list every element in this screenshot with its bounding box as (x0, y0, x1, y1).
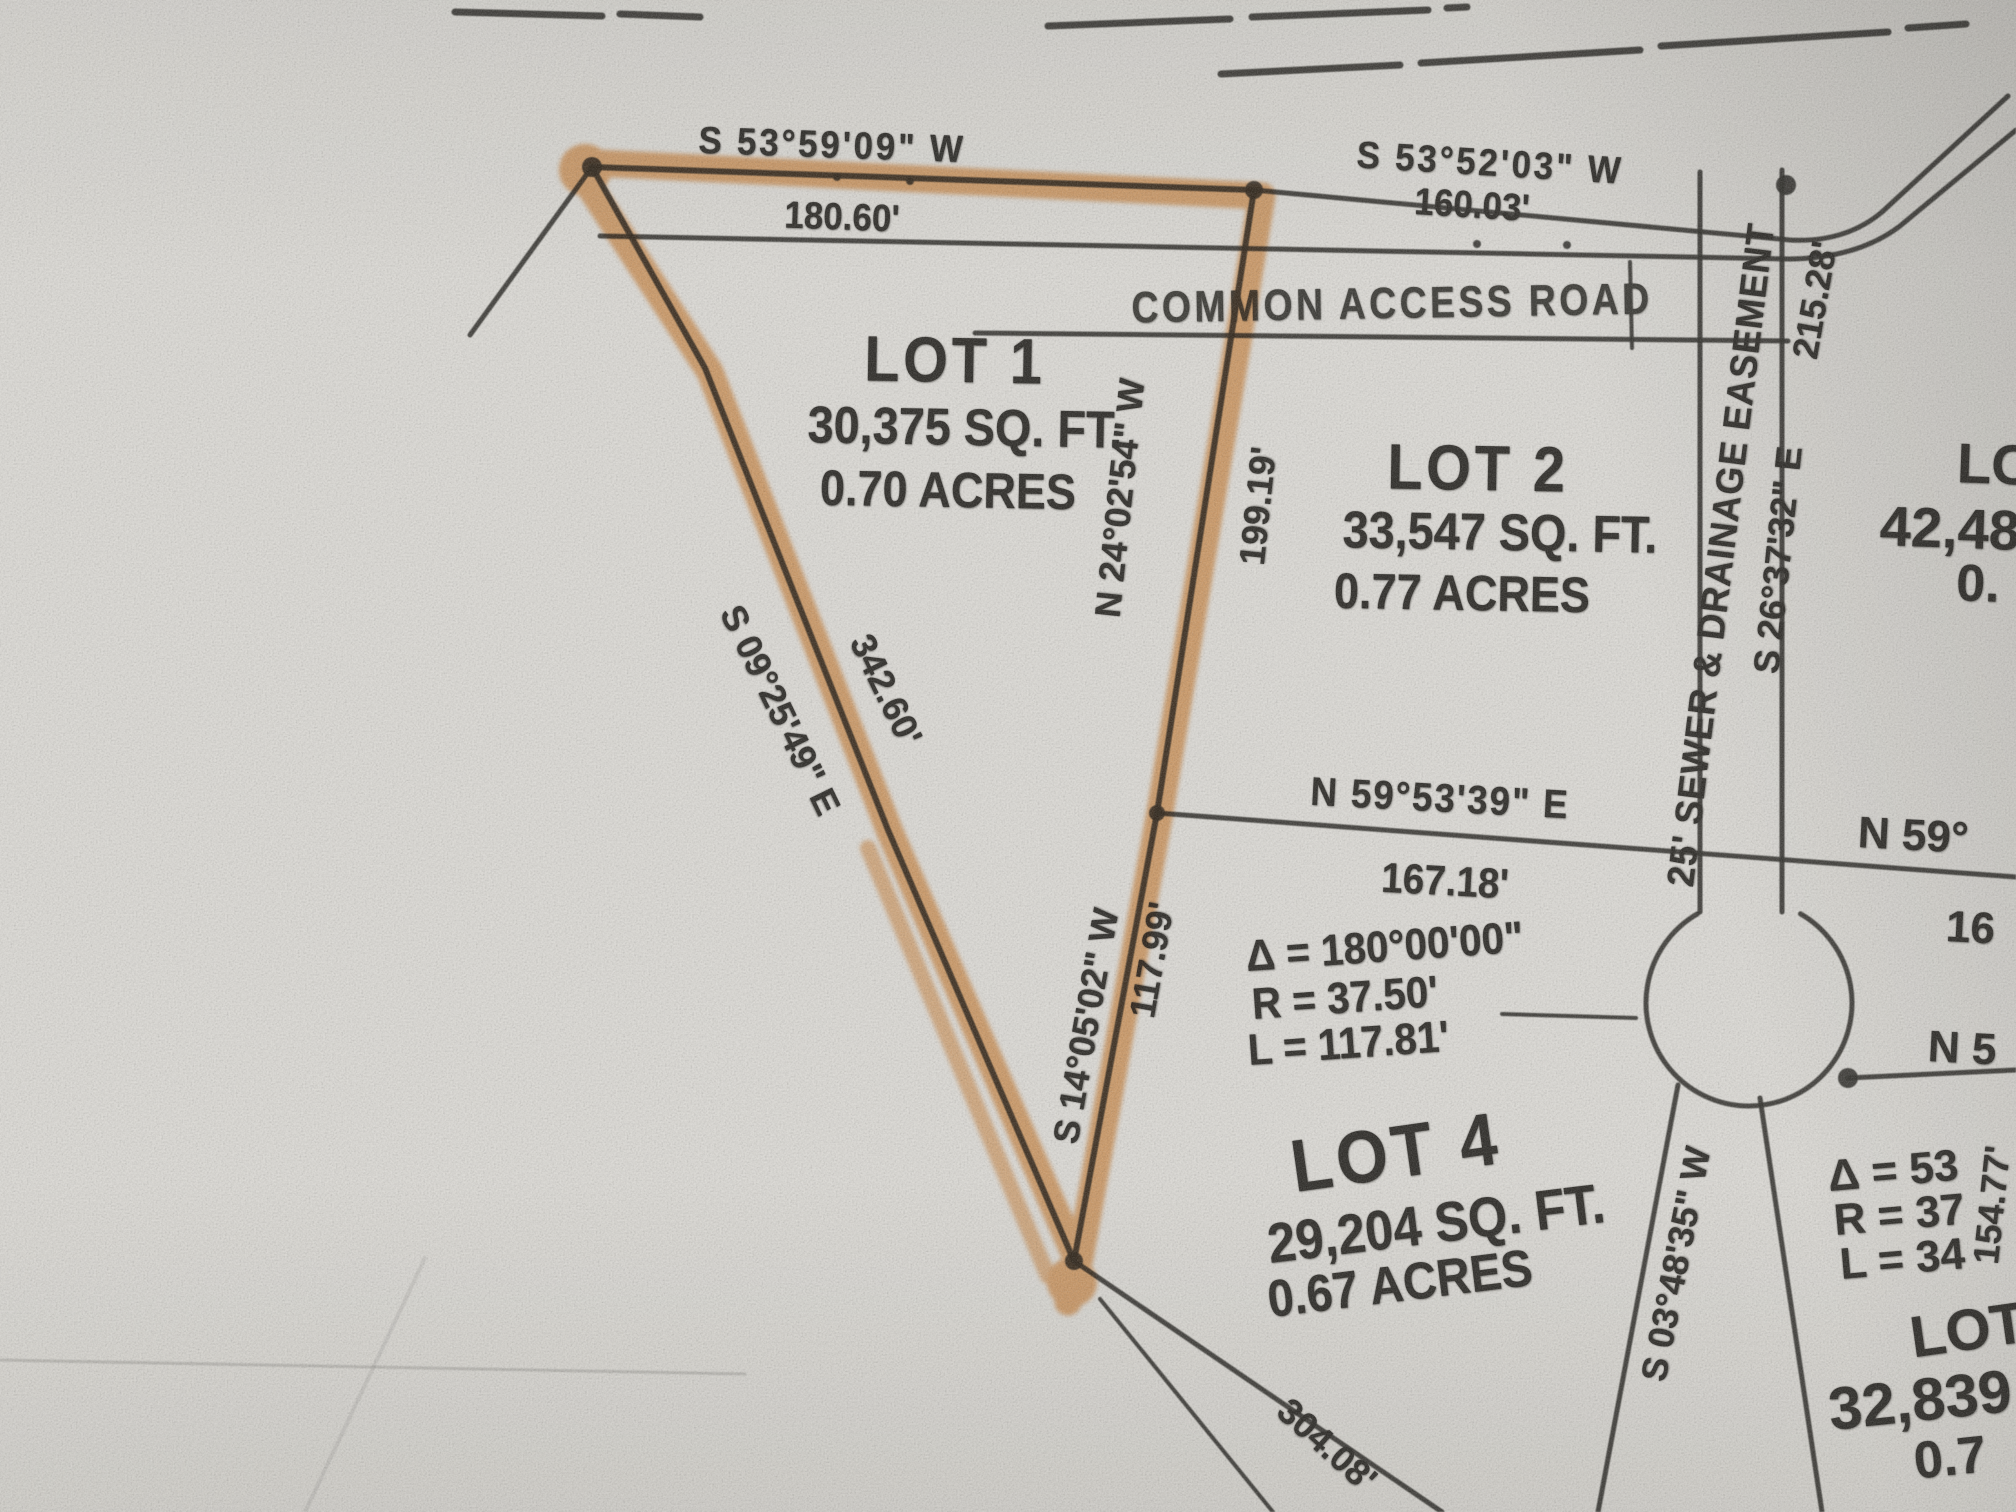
plat-map-photo: S 53°59'09" W 180.60' S 53°52'03" W 160.… (0, 0, 2016, 1512)
highlighter-marking (0, 0, 2016, 1512)
